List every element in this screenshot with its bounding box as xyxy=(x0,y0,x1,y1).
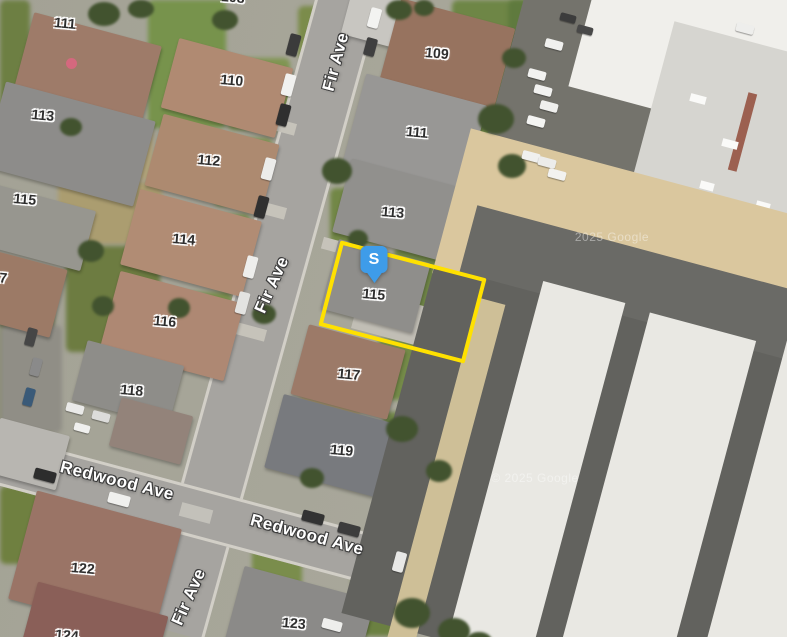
tree xyxy=(88,2,120,26)
tree xyxy=(212,10,238,30)
satellite-map-canvas[interactable]: 2025 Google © 2025 Google 108 111 109 11… xyxy=(0,0,787,637)
tree xyxy=(78,240,104,262)
tree xyxy=(60,118,82,136)
tree xyxy=(438,618,470,637)
tree xyxy=(252,304,276,324)
tree xyxy=(92,296,114,316)
marker-pointer-icon xyxy=(366,272,382,283)
house-roof xyxy=(109,397,193,464)
tree xyxy=(300,468,324,488)
property-marker-pin[interactable]: S xyxy=(361,246,388,283)
tree xyxy=(386,416,418,442)
tree xyxy=(478,104,514,134)
car xyxy=(91,410,111,423)
tree xyxy=(128,0,154,18)
tree xyxy=(502,48,526,68)
tree xyxy=(426,460,452,482)
tree xyxy=(322,158,352,184)
patio-umbrella xyxy=(66,58,77,69)
tree xyxy=(386,0,412,20)
car xyxy=(65,402,85,415)
tree xyxy=(394,598,430,628)
tree xyxy=(414,0,434,16)
tree xyxy=(168,298,190,318)
car xyxy=(73,422,91,434)
marker-letter: S xyxy=(361,246,388,273)
